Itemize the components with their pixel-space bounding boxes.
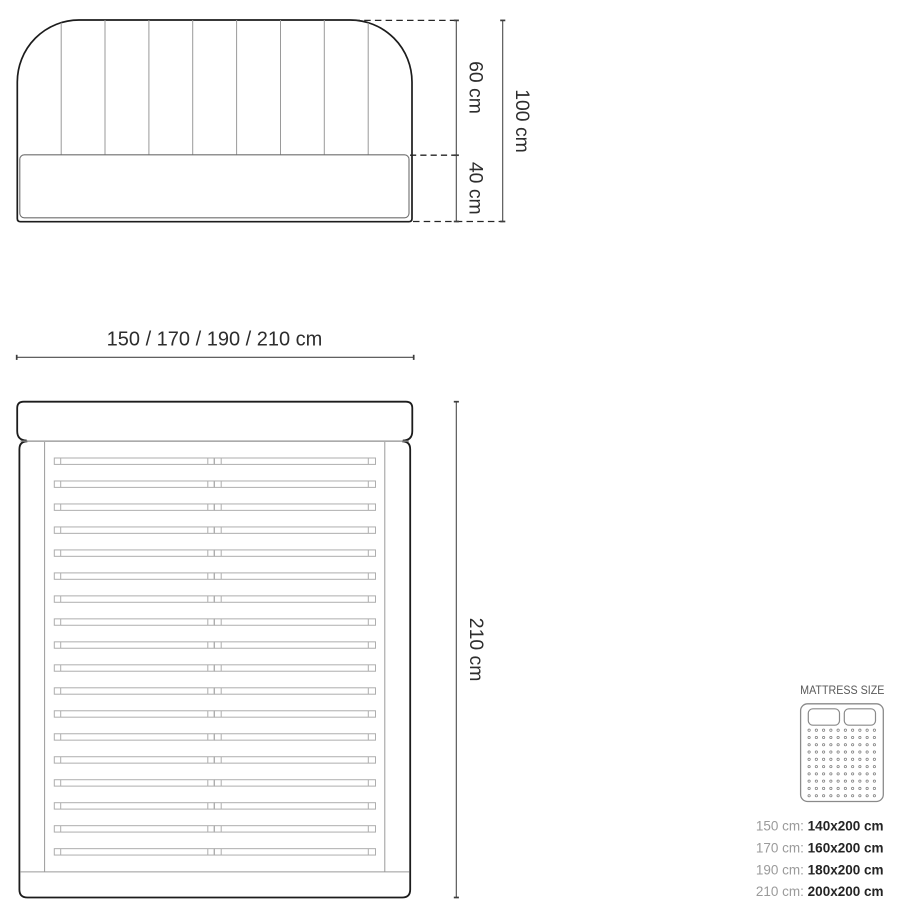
svg-text:170 cm: 160x200 cm: 170 cm: 160x200 cm: [756, 841, 884, 856]
svg-text:100 cm: 100 cm: [511, 89, 533, 153]
svg-text:210 cm: 200x200 cm: 210 cm: 200x200 cm: [756, 884, 884, 899]
svg-text:60 cm: 60 cm: [465, 61, 487, 114]
svg-text:40 cm: 40 cm: [465, 162, 487, 215]
svg-text:150 / 170 / 190 / 210 cm: 150 / 170 / 190 / 210 cm: [107, 329, 323, 351]
svg-text:210 cm: 210 cm: [465, 618, 487, 682]
svg-text:150 cm: 140x200 cm: 150 cm: 140x200 cm: [756, 819, 884, 834]
svg-text:MATTRESS SIZE: MATTRESS SIZE: [800, 684, 885, 697]
svg-text:190 cm: 180x200 cm: 190 cm: 180x200 cm: [756, 862, 884, 877]
